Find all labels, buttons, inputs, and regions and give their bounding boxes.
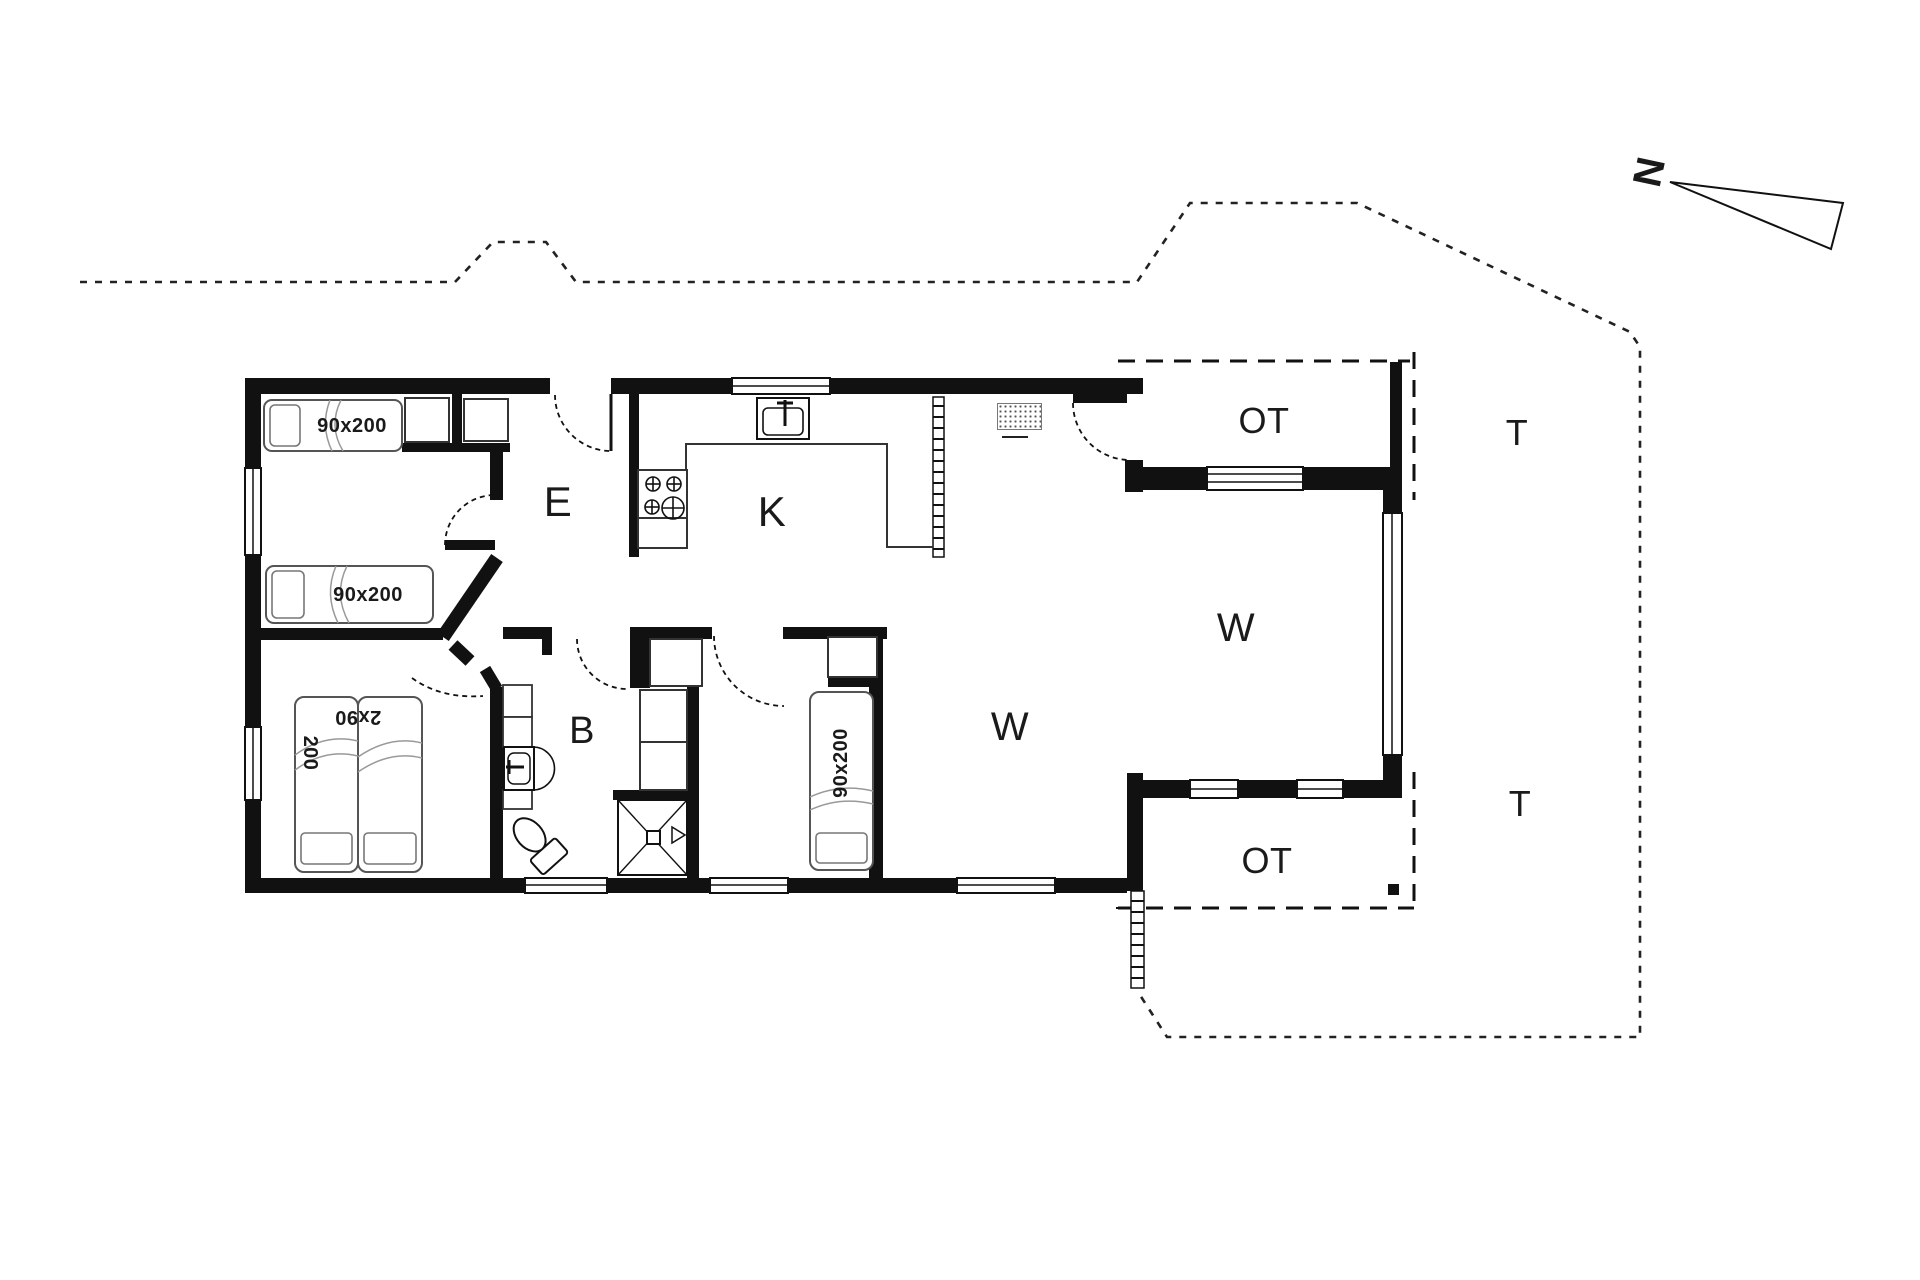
label-covered-terrace-south: OT xyxy=(1242,843,1293,879)
bed-size-label: 200 xyxy=(300,736,320,771)
room-label-living-large: W xyxy=(1217,608,1255,648)
floor-plan-drawing xyxy=(0,0,1920,1280)
bed-size-label: 2x90 xyxy=(335,707,382,727)
room-label-entrance: E xyxy=(544,481,573,523)
toilet-icon xyxy=(504,809,568,875)
label-covered-terrace-north: OT xyxy=(1239,403,1290,439)
floor-plan-page: E K B W W OT OT T T 90x200 90x200 2x90 2… xyxy=(0,0,1920,1280)
kitchen-sink-icon xyxy=(757,398,809,439)
label-terrace-south: T xyxy=(1509,786,1532,822)
fireplace-icon xyxy=(997,403,1042,430)
shower-icon xyxy=(618,800,687,875)
room-label-living-small: W xyxy=(991,707,1029,747)
fireplace-hearth-line xyxy=(1002,436,1028,438)
label-terrace-north: T xyxy=(1506,415,1529,451)
hatched-strips xyxy=(900,397,1144,988)
room-label-bath: B xyxy=(569,712,595,750)
bed-size-label: 90x200 xyxy=(831,728,851,798)
fence-strip xyxy=(1131,891,1144,988)
doors xyxy=(412,394,1130,706)
north-arrow-icon xyxy=(1670,182,1843,249)
bed-size-label: 90x200 xyxy=(333,585,403,605)
room-label-kitchen: K xyxy=(758,491,787,533)
bed-size-label: 90x200 xyxy=(317,416,387,436)
bath-sink-icon xyxy=(504,747,555,790)
boundary-marker xyxy=(1388,884,1399,895)
kitchen-divider-strip xyxy=(933,397,944,557)
diagonal-walls xyxy=(443,558,497,689)
